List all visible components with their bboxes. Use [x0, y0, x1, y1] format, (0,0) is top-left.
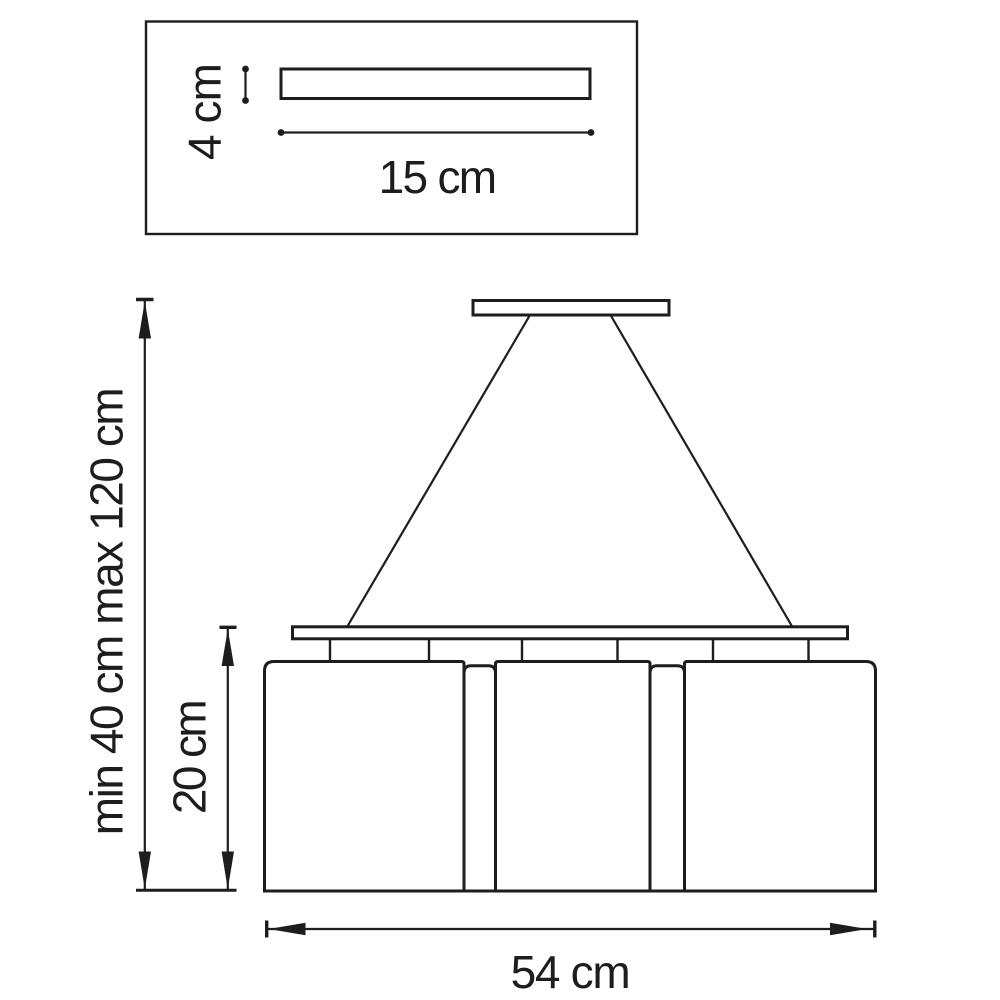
svg-text:min 40 cm max 120 cm: min 40 cm max 120 cm [81, 389, 133, 835]
svg-text:15 cm: 15 cm [379, 151, 496, 203]
svg-text:4 cm: 4 cm [179, 64, 231, 160]
svg-text:54 cm: 54 cm [511, 946, 630, 998]
svg-text:20 cm: 20 cm [164, 702, 216, 815]
